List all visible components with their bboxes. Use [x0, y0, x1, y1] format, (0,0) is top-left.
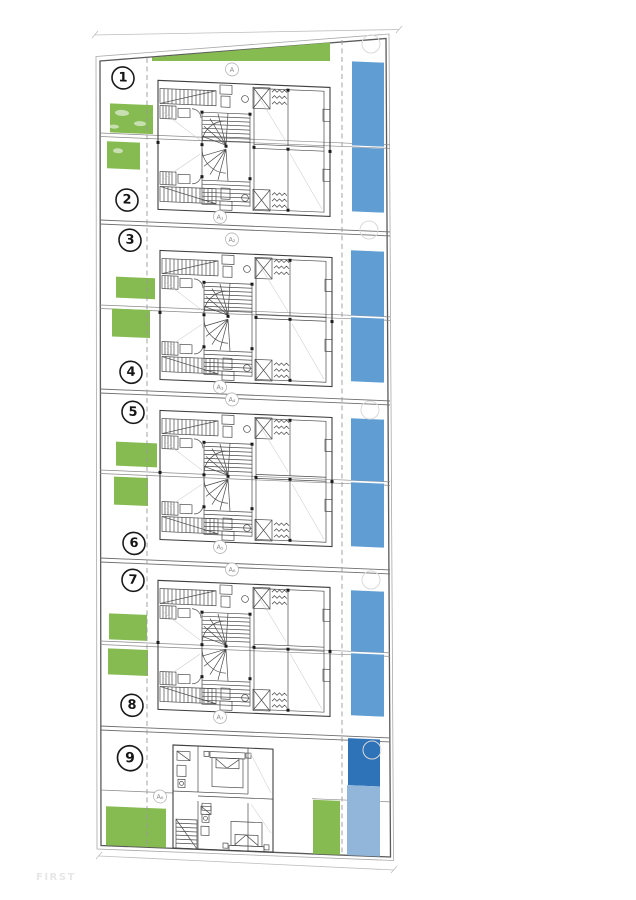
lawn-patch — [109, 613, 147, 641]
svg-text:A₇: A₇ — [216, 713, 223, 721]
lawn-patch-unit9-left — [106, 806, 166, 847]
svg-text:6: 6 — [129, 536, 138, 551]
lawn-patch-unit9-right — [313, 800, 340, 855]
svg-text:A₅: A₅ — [216, 543, 223, 551]
svg-text:7: 7 — [128, 573, 137, 588]
unit-number-1: 1 — [112, 66, 134, 89]
section-marker-a7: A₇ — [214, 710, 227, 724]
pool — [351, 250, 384, 316]
svg-text:4: 4 — [126, 365, 135, 380]
watermark-text: FIRST — [36, 872, 76, 883]
svg-text:8: 8 — [127, 698, 136, 713]
section-marker-a4: A₄ — [226, 393, 239, 407]
lawn-patch — [116, 442, 157, 468]
pool — [351, 317, 384, 382]
section-marker-a2: A₂ — [226, 233, 239, 247]
unit-number-7: 7 — [122, 569, 144, 592]
svg-text:2: 2 — [122, 192, 131, 207]
unit-number-6: 6 — [123, 532, 145, 555]
unit-number-9: 9 — [118, 745, 143, 771]
svg-text:9: 9 — [125, 750, 135, 766]
lawn-patch — [112, 308, 150, 338]
svg-text:A₂: A₂ — [228, 236, 235, 244]
svg-text:A₈: A₈ — [156, 793, 163, 801]
svg-text:3: 3 — [125, 233, 134, 248]
pool — [351, 653, 384, 716]
lawn-patch — [116, 277, 155, 300]
pool — [352, 61, 384, 146]
unit-number-3: 3 — [119, 229, 141, 252]
unit-number-8: 8 — [121, 694, 143, 717]
section-marker-a: A — [226, 63, 239, 77]
svg-text:1: 1 — [118, 70, 127, 85]
unit-number-2: 2 — [116, 189, 138, 212]
lawn-patch — [114, 477, 148, 506]
lawn-patch — [107, 141, 140, 169]
pool — [351, 418, 384, 481]
svg-text:A₄: A₄ — [228, 396, 235, 404]
svg-text:5: 5 — [128, 405, 137, 420]
section-marker-a1: A₁ — [214, 210, 227, 224]
section-marker-a8: A₈ — [154, 790, 167, 804]
unit-number-5: 5 — [122, 401, 144, 424]
svg-text:A: A — [230, 66, 235, 74]
svg-text:A₆: A₆ — [228, 566, 235, 574]
section-marker-a5: A₅ — [214, 540, 227, 554]
section-marker-a6: A₆ — [226, 563, 239, 577]
svg-text:A₃: A₃ — [216, 383, 223, 391]
lawn-patch — [108, 648, 148, 676]
svg-text:A₁: A₁ — [216, 213, 223, 221]
site-plan-page: 1 2 3 4 5 6 7 8 9 A A₁ A₂ A₃ A₄ A₅ A₆ A₇… — [0, 0, 636, 900]
pool — [352, 147, 384, 212]
pool — [351, 482, 384, 547]
pool — [351, 590, 384, 652]
pool-unit9-shallow — [347, 785, 380, 856]
unit-number-4: 4 — [120, 361, 142, 384]
section-marker-a3: A₃ — [214, 380, 227, 394]
architectural-site-plan: 1 2 3 4 5 6 7 8 9 A A₁ A₂ A₃ A₄ A₅ A₆ A₇… — [0, 0, 636, 900]
